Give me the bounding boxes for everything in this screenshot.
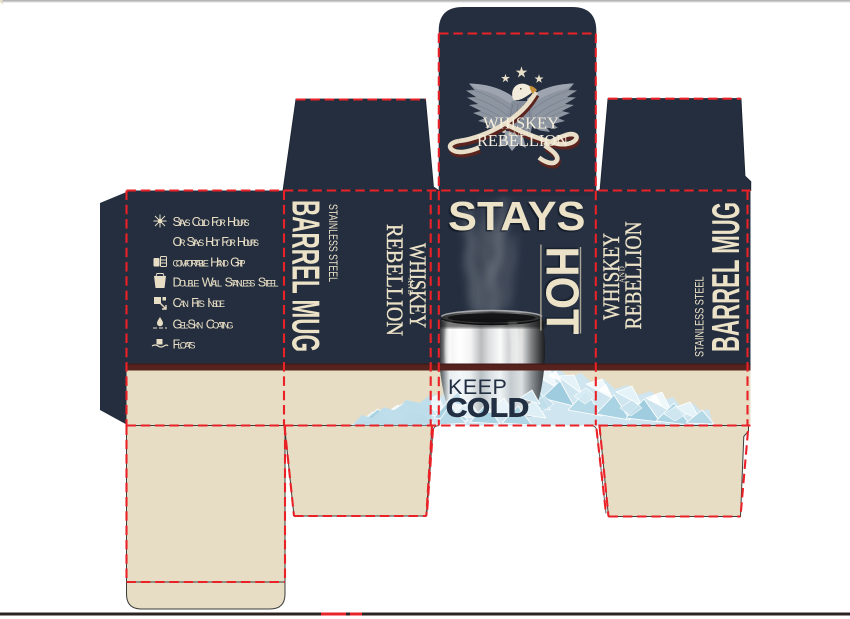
svg-text:Can Fits Inside: Can Fits Inside [173,296,226,310]
svg-text:REBELLION: REBELLION [477,131,568,150]
svg-text:Gel-Skin Coating: Gel-Skin Coating [173,318,234,332]
svg-text:REBELLION: REBELLION [621,221,647,329]
svg-text:Floats: Floats [173,337,196,351]
svg-text:STAYS: STAYS [448,193,586,239]
svg-text:BARREL MUG: BARREL MUG [705,202,748,352]
svg-text:COLD: COLD [446,393,529,423]
svg-text:Or Stays Hot For Hours: Or Stays Hot For Hours [173,235,260,249]
svg-text:STAINLESS STEEL: STAINLESS STEEL [326,204,340,282]
svg-text:STAINLESS STEEL: STAINLESS STEEL [692,276,706,357]
svg-text:Stays Cold For Hours: Stays Cold For Hours [173,215,250,229]
svg-text:comfortable Hand Grip: comfortable Hand Grip [173,255,246,269]
svg-text:REBELLION: REBELLION [381,224,407,336]
svg-text:BARREL MUG: BARREL MUG [284,200,327,352]
svg-text:Double Wall Stainless Steel: Double Wall Stainless Steel [173,275,279,289]
